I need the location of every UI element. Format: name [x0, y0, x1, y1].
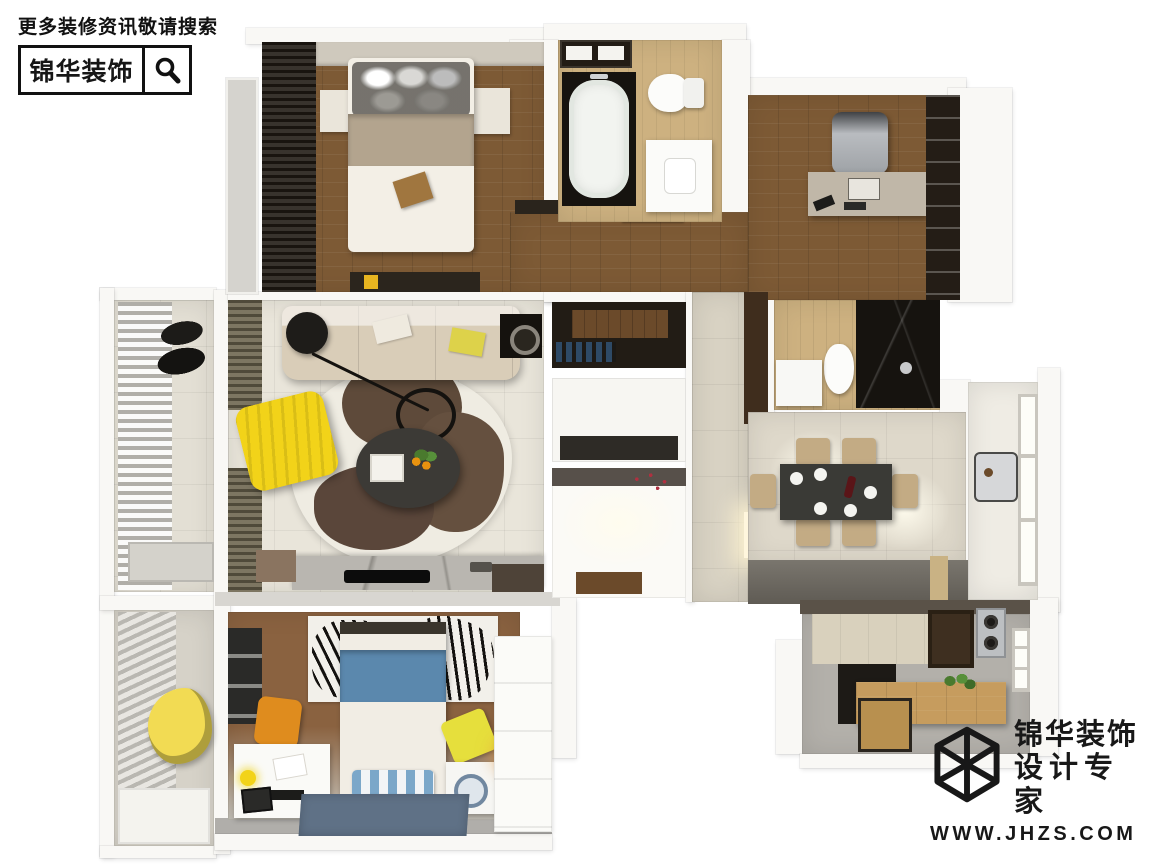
desk	[808, 172, 926, 216]
table-plant	[406, 446, 440, 472]
bath-cabinet	[560, 40, 632, 68]
brand-logo: 锦华装饰 设计专家 WWW.JHZS.COM	[930, 719, 1142, 846]
kitchen-window	[1012, 628, 1030, 692]
coffee-table	[356, 428, 460, 508]
desk-lamp	[240, 770, 256, 786]
bed	[348, 58, 474, 252]
desk-lamp-black	[813, 195, 835, 212]
logo-brand-line1: 锦华装饰	[1014, 719, 1142, 752]
dining-chair	[892, 474, 918, 508]
av-device	[470, 562, 492, 572]
cabinet-shelf	[566, 46, 592, 60]
toilet	[648, 74, 688, 112]
wardrobe2	[494, 636, 552, 832]
hallway-floor	[692, 292, 748, 602]
bookshelf	[926, 95, 960, 300]
logo-website: WWW.JHZS.COM	[930, 823, 1142, 846]
berry-decor	[630, 470, 676, 496]
balcony2-sill	[118, 788, 210, 844]
wall	[100, 846, 216, 858]
cabinet-shelf	[598, 46, 624, 60]
ac-ledge	[228, 80, 256, 292]
bedroom-corridor-floor	[510, 212, 748, 292]
wall	[100, 288, 114, 856]
office-chair	[832, 112, 888, 174]
blue-rug	[299, 794, 470, 836]
dining-chair	[842, 518, 876, 546]
bathtub-surround	[562, 72, 636, 206]
pillows	[352, 62, 470, 116]
utility-window	[1018, 394, 1038, 586]
magnifier-icon	[142, 48, 189, 92]
wood-step	[256, 550, 296, 582]
watermark-brand: 锦华装饰	[21, 52, 142, 88]
utility-sink	[974, 452, 1018, 502]
nightstand-left	[320, 90, 350, 132]
dining-chair	[842, 438, 876, 466]
tv-dresser	[350, 272, 480, 292]
floor-shadow-band	[215, 592, 560, 606]
dining-chair	[796, 518, 830, 546]
shower-marble	[856, 300, 940, 408]
cube-wireframe-icon	[930, 725, 1004, 812]
wine-bottle	[843, 475, 856, 498]
sofa-pillow-yellow	[448, 327, 486, 357]
dresser-accent	[364, 275, 378, 289]
nightstand-right	[472, 88, 510, 134]
shower-valve	[900, 362, 912, 374]
counter-box	[858, 698, 912, 752]
speaker-cone	[510, 325, 540, 355]
wall	[215, 834, 552, 850]
speaker	[500, 314, 542, 358]
watermark-text: 更多装修资讯敬请搜索	[18, 12, 218, 39]
stove	[976, 608, 1006, 658]
bed2-blanket	[340, 650, 446, 702]
tv	[344, 570, 430, 583]
wall	[734, 78, 966, 96]
plate	[864, 486, 877, 499]
counter-plants	[938, 670, 978, 692]
wall	[552, 598, 576, 758]
wall	[1038, 368, 1060, 612]
hall-cabinet	[744, 292, 768, 424]
desk-paper	[272, 753, 307, 780]
desk-keyboard	[844, 202, 866, 210]
bed2-headboard	[340, 622, 446, 634]
door-threshold	[930, 556, 948, 600]
wall	[722, 40, 750, 224]
door-mat	[576, 572, 642, 594]
bed2	[340, 622, 446, 822]
watermark-brand-box: 锦华装饰	[18, 45, 192, 95]
burner	[984, 636, 998, 650]
bench	[128, 542, 214, 582]
bathtub	[569, 80, 629, 198]
table-tray	[370, 454, 404, 482]
tablet	[241, 786, 273, 813]
beanbag	[148, 688, 212, 764]
wall	[776, 640, 802, 754]
blanket	[348, 114, 474, 166]
burner	[984, 615, 998, 629]
dining-chair	[796, 438, 830, 466]
living-curtain	[228, 300, 262, 410]
plate	[790, 472, 803, 485]
foyer-floor	[552, 468, 686, 598]
plate	[814, 468, 827, 481]
sink-drain	[984, 468, 993, 477]
faucet-icon	[590, 74, 608, 79]
orange-stool	[253, 695, 303, 748]
plate	[814, 502, 827, 515]
vanity2	[776, 360, 822, 406]
desk-monitor	[848, 178, 880, 200]
entry-closet	[552, 378, 686, 462]
wardrobe	[262, 42, 316, 292]
console-top	[572, 310, 668, 338]
range-hood-frame	[928, 610, 974, 668]
watermark: 更多装修资讯敬请搜索 锦华装饰	[18, 12, 218, 95]
closet-base	[560, 436, 678, 460]
dining-table	[780, 464, 892, 520]
sofa-pillow	[372, 314, 412, 344]
wall	[100, 596, 216, 610]
toilet2	[824, 344, 854, 394]
console-books	[556, 342, 616, 362]
arc-lamp	[286, 312, 328, 354]
plate	[844, 504, 857, 517]
toilet-tank	[684, 78, 704, 108]
bed-tray	[393, 171, 434, 208]
vanity	[646, 140, 712, 212]
entry-console	[552, 302, 686, 368]
logo-brand-line2: 设计专家	[1014, 752, 1142, 819]
dining-chair	[750, 474, 776, 508]
sink-basin	[664, 158, 696, 194]
wall	[100, 288, 216, 300]
side-cabinet	[492, 564, 544, 592]
